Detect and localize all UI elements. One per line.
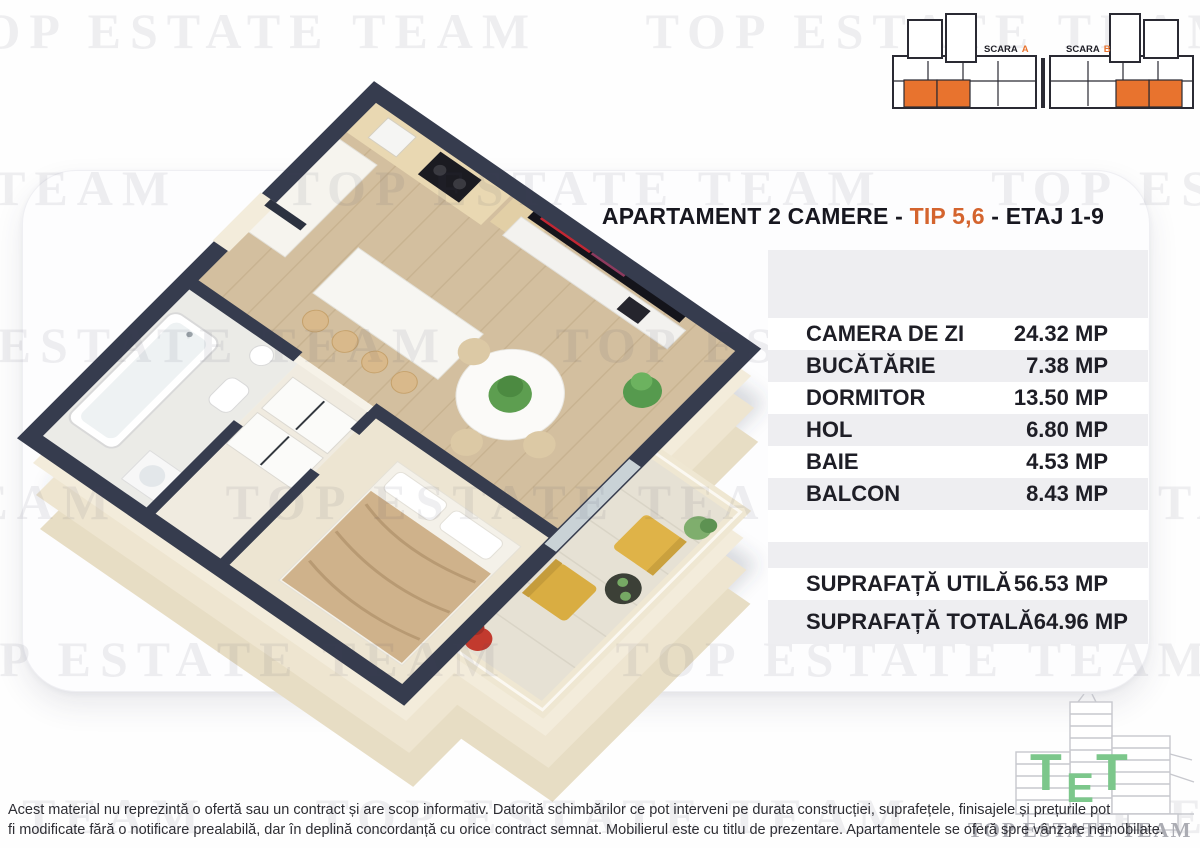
total-label: SUPRAFAȚĂ TOTALĂ [806, 609, 1034, 635]
apartment-title: APARTAMENT 2 CAMERE - TIP 5,6 - ETAJ 1-9 [555, 203, 1151, 230]
spacer-stripe [768, 542, 1148, 568]
disclaimer: Acest material nu reprezintă o ofertă sa… [8, 800, 1194, 840]
panel-header-band [768, 250, 1148, 318]
room-value: 13.50 MP [1014, 385, 1108, 411]
wing-junction [1041, 58, 1045, 108]
total-value: 64.96 MP [1034, 609, 1128, 635]
highlighted-unit [904, 80, 937, 107]
disclaimer-line1: Acest material nu reprezintă o ofertă sa… [8, 800, 1194, 820]
highlighted-unit [1116, 80, 1149, 107]
room-value: 6.80 MP [1026, 417, 1108, 443]
room-row: CAMERA DE ZI 24.32 MP [768, 318, 1148, 350]
room-label: BALCON [806, 481, 900, 507]
room-row: BUCĂTĂRIE 7.38 MP [768, 350, 1148, 382]
wing-scara-a [893, 14, 1036, 108]
room-row: BALCON 8.43 MP [768, 478, 1148, 510]
room-value: 8.43 MP [1026, 481, 1108, 507]
room-label: DORMITOR [806, 385, 925, 411]
room-value: 24.32 MP [1014, 321, 1108, 347]
room-value: 7.38 MP [1026, 353, 1108, 379]
scara-a-label: SCARAA [984, 44, 1029, 55]
card-content: APARTAMENT 2 CAMERE - TIP 5,6 - ETAJ 1-9… [22, 170, 1148, 690]
spacer-stripe [768, 510, 1148, 542]
total-row: SUPRAFAȚĂ TOTALĂ 64.96 MP [768, 600, 1148, 644]
highlighted-unit [1149, 80, 1182, 107]
room-label: CAMERA DE ZI [806, 321, 964, 347]
room-value: 4.53 MP [1026, 449, 1108, 475]
highlighted-unit [937, 80, 970, 107]
title-highlight: TIP 5,6 [910, 203, 985, 229]
total-row: SUPRAFAȚĂ UTILĂ 56.53 MP [768, 568, 1148, 600]
room-label: BUCĂTĂRIE [806, 353, 936, 379]
room-areas-panel: CAMERA DE ZI 24.32 MP BUCĂTĂRIE 7.38 MP … [768, 250, 1148, 644]
room-label: BAIE [806, 449, 859, 475]
scara-b-label: SCARAB [1066, 44, 1111, 55]
wing-scara-b [1050, 14, 1193, 108]
page: { "title": { "part1": "APARTAMENT 2 CAME… [0, 0, 1200, 848]
total-value: 56.53 MP [1014, 571, 1108, 597]
title-part2: - ETAJ 1-9 [985, 203, 1104, 229]
total-label: SUPRAFAȚĂ UTILĂ [806, 571, 1011, 597]
room-row: HOL 6.80 MP [768, 414, 1148, 446]
room-label: HOL [806, 417, 852, 443]
building-level-schematic: SCARAA SCARAB [888, 6, 1198, 118]
tet-letter-t2: T [1096, 744, 1128, 802]
tet-letter-t1: T [1030, 744, 1062, 802]
disclaimer-line2: fi modificate fără o notificare prealabi… [8, 820, 1194, 840]
title-part1: APARTAMENT 2 CAMERE - [602, 203, 910, 229]
room-row: DORMITOR 13.50 MP [768, 382, 1148, 414]
room-row: BAIE 4.53 MP [768, 446, 1148, 478]
